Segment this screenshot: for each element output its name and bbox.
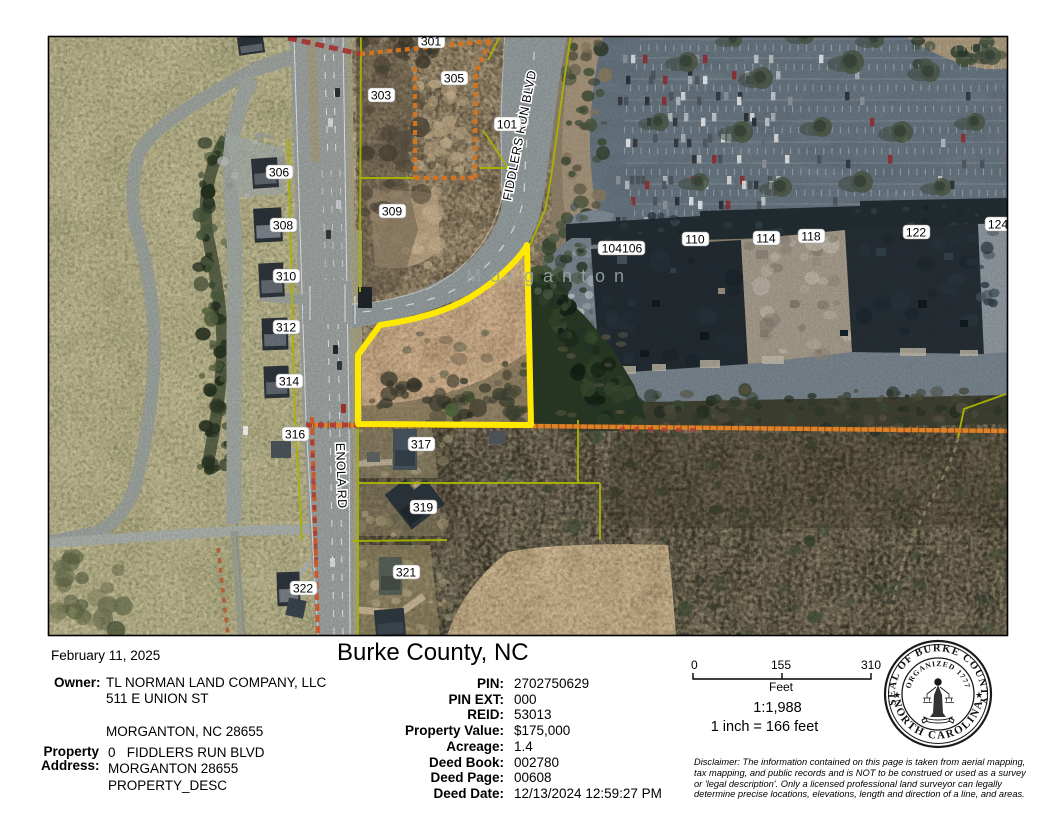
svg-text:124: 124 [988,217,1009,231]
svg-text:317: 317 [411,437,432,451]
svg-text:★: ★ [975,690,983,700]
svg-text:ENOLA RD: ENOLA RD [333,443,349,509]
svg-text:319: 319 [413,500,434,514]
svg-text:Morganton: Morganton [466,266,633,286]
svg-text:312: 312 [276,320,297,334]
svg-text:104106: 104106 [602,241,643,255]
svg-text:308: 308 [273,218,294,232]
svg-text:155: 155 [771,658,791,672]
svg-text:Feet: Feet [769,680,794,694]
svg-text:305: 305 [444,71,465,85]
svg-text:306: 306 [269,165,290,179]
svg-text:309: 309 [382,204,403,218]
svg-text:★: ★ [893,690,901,700]
svg-text:114: 114 [756,231,776,245]
svg-text:314: 314 [279,374,300,388]
svg-text:322: 322 [293,581,314,595]
svg-text:122: 122 [906,225,927,239]
svg-text:110: 110 [685,232,705,246]
svg-text:303: 303 [371,88,392,102]
svg-text:118: 118 [801,229,821,243]
svg-text:310: 310 [861,658,881,672]
svg-text:0: 0 [691,658,698,672]
svg-text:316: 316 [285,427,306,441]
svg-text:101: 101 [497,117,518,131]
svg-text:321: 321 [396,565,417,579]
svg-text:310: 310 [276,269,297,283]
